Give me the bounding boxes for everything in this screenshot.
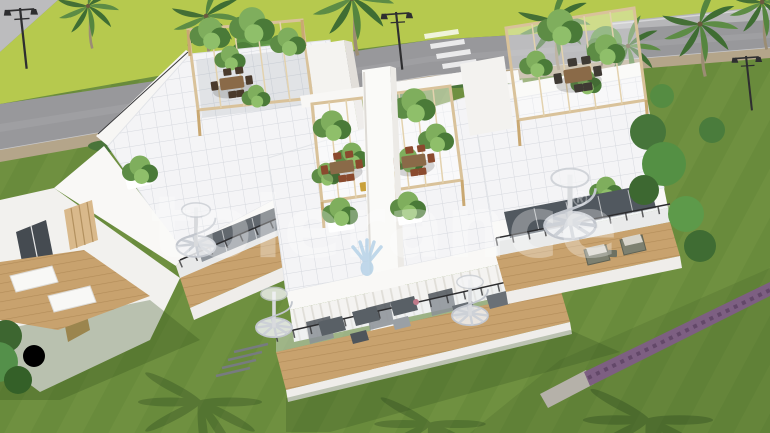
watermark-text: tolerance	[151, 178, 619, 278]
registered-mark: ®	[570, 187, 590, 211]
render-canvas: tolerance ®	[0, 0, 770, 433]
flower-vase	[413, 299, 419, 305]
hand-logo-palm	[361, 260, 374, 276]
watermark: tolerance ®	[151, 178, 619, 278]
aerial-villa-render: tolerance ®	[0, 0, 770, 433]
